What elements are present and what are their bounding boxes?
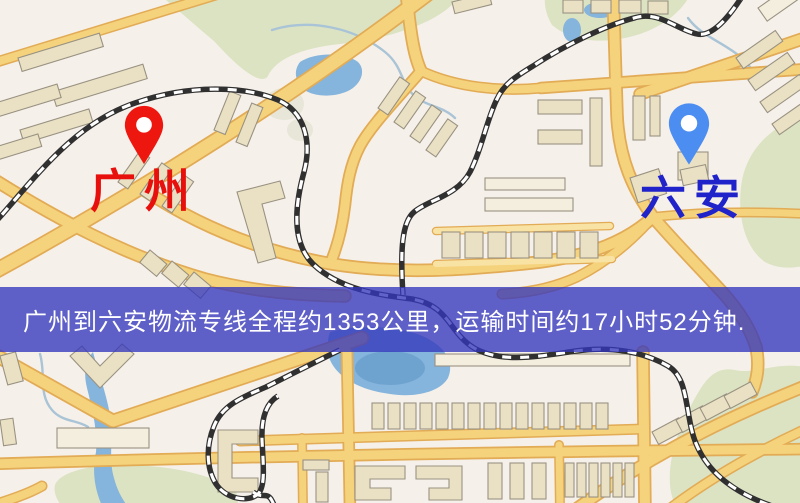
route-info-banner: 广州到六安物流专线全程约1353公里，运输时间约17小时52分钟. bbox=[0, 287, 800, 352]
origin-marker-pin bbox=[122, 104, 166, 166]
route-info-text: 广州到六安物流专线全程约1353公里，运输时间约17小时52分钟. bbox=[23, 302, 745, 337]
pin-hole-icon bbox=[136, 117, 152, 133]
logistics-route-map: 广州 六安 广州到六安物流专线全程约1353公里，运输时间约17小时52分钟. bbox=[0, 0, 800, 503]
origin-city-label: 广州 bbox=[90, 168, 198, 216]
map-canvas bbox=[0, 0, 800, 503]
pin-hole-icon bbox=[681, 115, 697, 131]
destination-city-label: 六安 bbox=[640, 175, 748, 223]
destination-marker-pin bbox=[666, 100, 712, 168]
